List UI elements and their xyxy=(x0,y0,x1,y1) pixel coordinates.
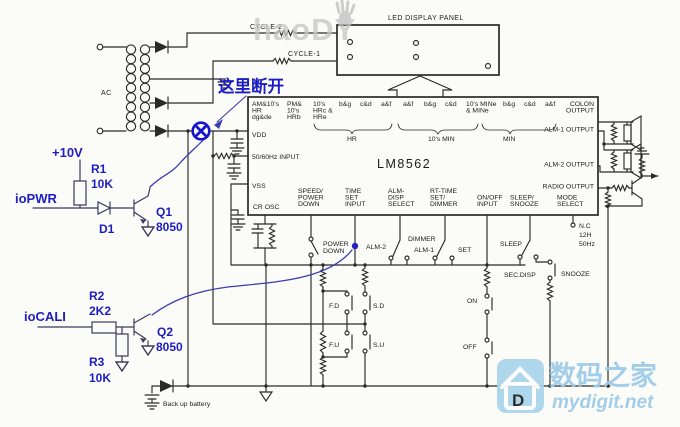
ac-label: AC xyxy=(101,90,112,97)
junction-dot xyxy=(211,154,214,157)
off-button-label: OFF xyxy=(463,344,477,351)
rectifier-diode xyxy=(155,97,168,109)
ic-name: LM8562 xyxy=(377,157,431,171)
brace-hr xyxy=(314,124,392,134)
ic-bottom-pin-label: CR OSC xyxy=(253,204,280,211)
transformer-secondary-coil xyxy=(140,122,149,131)
switch-contact xyxy=(309,253,313,257)
q1-model: 8050 xyxy=(156,220,183,234)
switch-contact xyxy=(363,349,367,353)
junction-dot xyxy=(321,289,324,292)
switch-contact xyxy=(345,349,349,353)
ic-bottom-pin-label: SELECT xyxy=(388,201,414,208)
segment-bus-arrow xyxy=(388,76,452,97)
ic-top-pin-label: a&f xyxy=(545,101,555,108)
switch-contact xyxy=(548,276,552,280)
junction-dot xyxy=(264,263,267,266)
switch-contact xyxy=(571,223,575,227)
group-hr: HR xyxy=(347,136,357,143)
note-arrow xyxy=(217,96,246,122)
ground-arrow-icon xyxy=(260,392,272,401)
transformer-primary-coil xyxy=(126,103,135,112)
alm2-switch-label: ALM-2 xyxy=(366,244,386,251)
ground-q2 xyxy=(142,346,154,355)
ic-top-pin-label: c&d xyxy=(360,101,372,108)
switch-contact xyxy=(345,331,349,335)
transformer-secondary-coil xyxy=(140,83,149,92)
switch-contact xyxy=(485,354,489,358)
resistor xyxy=(611,152,616,169)
set-switch-label: SET xyxy=(458,247,471,254)
junction-dot xyxy=(235,129,238,132)
ic-pin-labels: AM&10'sHRdg&dePM&10'sHRb10'sHRc &HReb&gc… xyxy=(252,101,583,211)
switch-contact xyxy=(363,310,367,314)
transformer-secondary-coil xyxy=(140,112,149,121)
switch-lever xyxy=(437,240,445,256)
resistor xyxy=(611,124,616,141)
decimal-dot xyxy=(486,64,491,69)
resistor xyxy=(214,153,234,158)
display-panel xyxy=(337,25,499,75)
transformer-primary-coil xyxy=(126,55,135,64)
transformer-primary-coil xyxy=(126,122,135,131)
junction-dot xyxy=(309,263,312,266)
resistor xyxy=(612,185,629,190)
ac-terminal xyxy=(97,44,103,50)
ic-bottom-pin-label: SNOOZE xyxy=(510,201,539,208)
transformer-primary-coil xyxy=(126,64,135,73)
junction-dot xyxy=(485,263,488,266)
junction-dot xyxy=(321,384,324,387)
r1-resistor xyxy=(74,181,86,205)
resistor xyxy=(484,268,489,287)
top-watermark: haoDY xyxy=(253,1,356,47)
transformer-primary-coil xyxy=(126,74,135,83)
junction-dot xyxy=(232,154,235,157)
ground-arrow-icon xyxy=(142,227,154,236)
pin-radio-output: RADIO OUTPUT xyxy=(543,184,594,191)
ic-bottom-pin-label: DIMMER xyxy=(430,201,458,208)
site-name: 数码之家 xyxy=(549,360,657,391)
brace-10s-min xyxy=(398,124,478,134)
junction-dot xyxy=(363,263,366,266)
snooze-button-label: SNOOZE xyxy=(561,271,590,278)
site-watermark: D 数码之家 mydigit.net xyxy=(497,359,657,413)
junction-dot xyxy=(321,355,324,358)
pin-alm2-output: ALM-2 OUTPUT xyxy=(544,162,594,169)
junction-dot xyxy=(353,263,356,266)
resistor xyxy=(362,268,367,286)
resistor xyxy=(273,58,291,63)
jumper-wire-q2 xyxy=(152,250,352,315)
ac-terminal xyxy=(97,128,103,134)
switch-lever xyxy=(522,240,530,255)
sec-disp-label: SEC.DISP xyxy=(504,272,536,279)
mode-option-12h: 12H xyxy=(579,232,592,239)
r1-label: R1 xyxy=(91,162,107,176)
r2-label: R2 xyxy=(89,289,105,303)
dimmer-switch-label: DIMMER xyxy=(408,236,436,243)
ground-arrow-icon xyxy=(142,346,154,355)
io-cali-label: ioCALI xyxy=(24,309,66,324)
ic-top-pin-label: HRb xyxy=(287,114,301,121)
solder-dot xyxy=(352,243,358,249)
switch-contact xyxy=(433,256,437,260)
junction-dot xyxy=(186,384,189,387)
switch-contact xyxy=(405,256,409,260)
r3-value: 10K xyxy=(89,371,111,385)
sd-button-label: S.D xyxy=(373,303,384,310)
speaker-icon xyxy=(624,153,631,169)
junction-dot xyxy=(186,129,189,132)
wire xyxy=(632,192,642,199)
transformer-primary-coil xyxy=(126,45,135,54)
switch-contact xyxy=(485,338,489,342)
junction-dot xyxy=(321,263,324,266)
switch-contact xyxy=(345,292,349,296)
cycle1-label: CYCLE-1 xyxy=(288,51,320,58)
colon-dot xyxy=(414,55,419,60)
ic-top-pin-label: HRe xyxy=(313,114,327,121)
ic-top-pin-label: b&g xyxy=(339,101,351,108)
switch-contact xyxy=(485,310,489,314)
pin-5060hz: 50/60Hz INPUT xyxy=(252,154,300,161)
r2-resistor xyxy=(92,322,116,333)
alm1-switch-label: ALM-1 xyxy=(414,247,434,254)
switch-contact xyxy=(450,256,454,260)
colon-dot xyxy=(414,41,419,46)
transformer-primary-coil xyxy=(126,83,135,92)
components xyxy=(116,30,658,409)
d1-diode xyxy=(98,202,110,214)
mod-circuit xyxy=(33,96,358,371)
backup-battery-label: Back up battery xyxy=(163,401,211,408)
switch-contact xyxy=(485,294,489,298)
resistor xyxy=(547,282,552,301)
site-url: mydigit.net xyxy=(552,392,654,413)
q2-model: 8050 xyxy=(156,340,183,354)
junction-dot xyxy=(264,384,267,387)
transformer-secondary-coil xyxy=(140,64,149,73)
ic-top-pin-label: c&d xyxy=(445,101,457,108)
transformer-primary-coil xyxy=(126,112,135,121)
junction-dot xyxy=(363,384,366,387)
radio-out-arrow xyxy=(651,173,658,179)
r3-resistor xyxy=(116,334,128,356)
pin-colon-output: OUTPUT xyxy=(566,108,594,115)
break-note: 这里断开 xyxy=(218,76,284,96)
io-pwr-label: ioPWR xyxy=(15,191,57,206)
junction-dot xyxy=(606,186,609,189)
jumper-wire-q1 xyxy=(150,135,208,187)
on-button-label: ON xyxy=(467,298,477,305)
resistor xyxy=(320,331,325,353)
ground-arrow-icon xyxy=(116,362,128,371)
su-button-label: S.U xyxy=(373,342,384,349)
ic-top-pin-label: & MINe xyxy=(466,108,489,115)
mode-option-nc: N.C xyxy=(579,223,591,230)
ic-top-pin-label: c&d xyxy=(524,101,536,108)
logo-letter: D xyxy=(512,391,524,410)
ic-bottom-pin-label: INPUT xyxy=(345,201,365,208)
q1-label: Q1 xyxy=(156,205,172,219)
switch-contact xyxy=(389,256,393,260)
q2-label: Q2 xyxy=(157,325,173,339)
switch-contact xyxy=(548,260,552,264)
group-10s-min: 10's MIN xyxy=(428,136,455,143)
rectifier-diode xyxy=(155,41,168,53)
d1-label: D1 xyxy=(99,222,115,236)
switch-lever xyxy=(311,241,318,254)
resistor xyxy=(320,357,325,375)
ic-bottom-pin-label: SELECT xyxy=(557,201,583,208)
group-min: MIN xyxy=(503,136,516,143)
r3-label: R3 xyxy=(89,355,105,369)
resistor xyxy=(269,226,274,246)
display-title: LED DISPLAY PANEL xyxy=(388,15,464,22)
sleep-switch-label: SLEEP xyxy=(500,241,522,248)
ground-r3 xyxy=(116,362,128,371)
switch-contact xyxy=(345,310,349,314)
ic-top-pin-label: b&g xyxy=(503,101,515,108)
transformer-secondary-coil xyxy=(140,103,149,112)
ic-top-pin-label: dg&de xyxy=(252,114,272,121)
supply-label: +10V xyxy=(52,145,83,160)
transformer-secondary-coil xyxy=(140,93,149,102)
backup-diode xyxy=(160,380,173,392)
r2-value: 2K2 xyxy=(89,304,111,318)
power-down-switch-label: DOWN xyxy=(323,248,345,255)
ic-top-pin-label: a&f xyxy=(403,101,413,108)
switch-contact xyxy=(363,292,367,296)
rectifier-diode xyxy=(155,125,168,137)
clock-circuit-schematic: AC CYCLE-2 CYCLE-1 LED DISPLAY PANEL d88… xyxy=(0,0,680,427)
ic-top-pin-label: b&g xyxy=(424,101,436,108)
switch-contact xyxy=(518,255,522,259)
speaker-icon xyxy=(624,125,631,141)
ic-bottom-pin-label: DOWN xyxy=(298,201,320,208)
mode-option-50hz: 50Hz xyxy=(579,241,595,248)
junction-dot xyxy=(606,204,609,207)
ic-top-pin-label: a&f xyxy=(381,101,391,108)
indicator-dot xyxy=(348,55,353,60)
pin-vss: VSS xyxy=(252,183,266,190)
fd-button-label: F.D xyxy=(329,303,339,310)
junction-dot xyxy=(485,384,488,387)
transformer-secondary-coil xyxy=(140,45,149,54)
pin-vdd: VDD xyxy=(252,132,266,139)
switch-contact xyxy=(309,237,313,241)
junction-dot xyxy=(602,142,605,145)
transformer-secondary-coil xyxy=(140,55,149,64)
fu-button-label: F.U xyxy=(329,342,339,349)
resistor xyxy=(639,158,644,174)
switch-contact xyxy=(363,331,367,335)
ground-q1 xyxy=(142,227,154,236)
transformer-primary-coil xyxy=(126,93,135,102)
switch-contact xyxy=(534,255,538,259)
schematic-page: AC CYCLE-2 CYCLE-1 LED DISPLAY PANEL d88… xyxy=(0,0,680,427)
transformer-secondary-coil xyxy=(140,74,149,83)
switch-lever xyxy=(393,240,400,256)
ic-bottom-pin-label: INPUT xyxy=(477,201,497,208)
r1-value: 10K xyxy=(91,177,113,191)
junction-dot xyxy=(363,322,366,325)
